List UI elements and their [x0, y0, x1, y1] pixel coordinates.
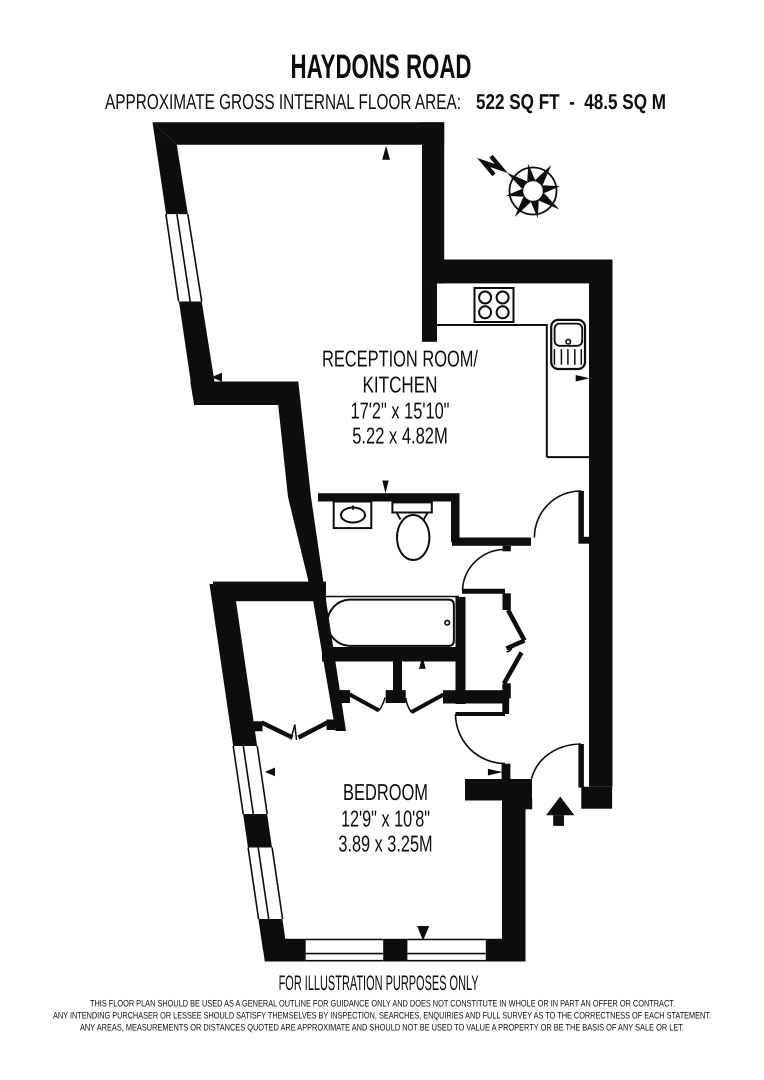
- svg-text:ANY AREAS, MEASUREMENTS OR DIS: ANY AREAS, MEASUREMENTS OR DISTANCES QUO…: [80, 1023, 684, 1034]
- svg-text:12'9" x 10'8": 12'9" x 10'8": [341, 805, 430, 831]
- svg-text:ANY INTENDING PURCHASER OR LES: ANY INTENDING PURCHASER OR LESSEE SHOULD…: [53, 1011, 711, 1022]
- svg-text:5.22 x 4.82M: 5.22 x 4.82M: [352, 423, 448, 449]
- svg-text:APPROXIMATE GROSS INTERNAL FLO: APPROXIMATE GROSS INTERNAL FLOOR AREA:: [105, 90, 461, 114]
- svg-text:BEDROOM: BEDROOM: [343, 779, 428, 805]
- svg-text:HAYDONS ROAD: HAYDONS ROAD: [291, 48, 472, 86]
- svg-text:FOR ILLUSTRATION PURPOSES ONLY: FOR ILLUSTRATION PURPOSES ONLY: [279, 972, 479, 995]
- svg-text:RECEPTION ROOM/: RECEPTION ROOM/: [322, 346, 478, 372]
- svg-text:3.89 x 3.25M: 3.89 x 3.25M: [338, 831, 432, 857]
- svg-text:17'2" x 15'10": 17'2" x 15'10": [351, 398, 450, 424]
- svg-text:522 SQ FT - 48.5 SQ M: 522 SQ FT - 48.5 SQ M: [476, 90, 666, 114]
- svg-text:THIS FLOOR PLAN SHOULD BE USED: THIS FLOOR PLAN SHOULD BE USED AS A GENE…: [90, 999, 675, 1010]
- svg-text:KITCHEN: KITCHEN: [363, 371, 438, 397]
